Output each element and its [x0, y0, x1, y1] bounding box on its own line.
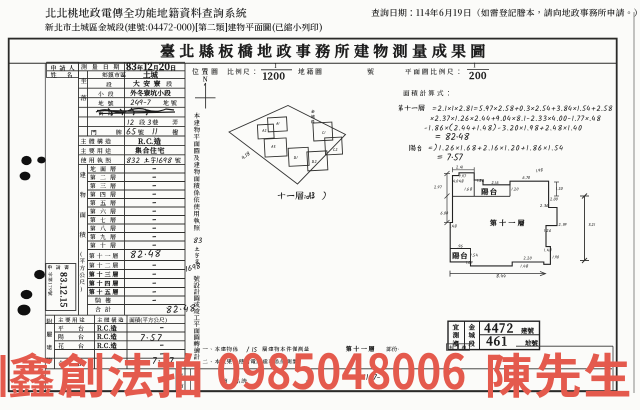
svg-text:1.50: 1.50 [555, 186, 563, 193]
svg-text:陽台: 陽台 [481, 187, 498, 198]
svg-text:1200: 1200 [263, 69, 287, 83]
svg-text:第十二層: 第十二層 [88, 260, 120, 269]
svg-text:坐: 坐 [81, 76, 88, 85]
svg-text:1.48: 1.48 [520, 264, 529, 271]
svg-text:82·48: 82·48 [165, 301, 197, 319]
svg-text:N: N [203, 75, 209, 84]
svg-text:6.70: 6.70 [523, 175, 531, 182]
svg-text:建號: 建號 [520, 326, 535, 335]
svg-text:200: 200 [469, 68, 488, 82]
svg-text:第十一層: 第十一層 [397, 104, 425, 113]
svg-text:北北桃地政電傳全功能地籍資料查詢系統: 北北桃地政電傳全功能地籍資料查詢系統 [45, 5, 247, 21]
svg-text:2.16: 2.16 [491, 180, 500, 187]
svg-text:鑫創法拍: 鑫創法拍 [8, 338, 206, 406]
svg-text:1.90: 1.90 [552, 255, 560, 262]
svg-text:號: 號 [367, 67, 375, 77]
svg-text:陽台: 陽台 [409, 145, 423, 152]
svg-text:路: 路 [310, 119, 315, 125]
svg-text:土字: 土字 [143, 157, 157, 164]
svg-text:牌: 牌 [115, 127, 122, 136]
svg-text:1698: 1698 [156, 155, 172, 168]
svg-text:合計: 合計 [95, 305, 115, 314]
svg-text:A1: A1 [276, 122, 280, 128]
svg-text:建: 建 [80, 170, 87, 179]
svg-text:面: 面 [80, 210, 86, 219]
svg-text:R.C.造: R.C.造 [97, 323, 117, 332]
svg-text:B2: B2 [312, 160, 318, 166]
svg-text:積: 積 [80, 230, 87, 239]
svg-text:1.26: 1.26 [543, 228, 552, 235]
svg-text:3: 3 [147, 117, 152, 130]
svg-text:1.26: 1.26 [476, 178, 485, 185]
svg-text:小段: 小段 [97, 89, 118, 98]
svg-text:.48: .48 [451, 224, 457, 231]
svg-text:土: 土 [194, 246, 200, 252]
svg-text:第十四層: 第十四層 [88, 278, 120, 287]
svg-text:物: 物 [80, 190, 87, 199]
svg-text:3.21: 3.21 [588, 222, 595, 229]
svg-text:段: 段 [139, 118, 146, 127]
svg-text:臺北縣板橋地政事務所建物測量成果圖: 臺北縣板橋地政事務所建物測量成果圖 [160, 41, 490, 62]
svg-text:): ) [80, 285, 82, 293]
svg-text:2.97: 2.97 [433, 185, 443, 192]
svg-text:鄉鎮市區: 鄉鎮市區 [102, 70, 126, 79]
svg-text:6.00: 6.00 [441, 211, 449, 218]
svg-text:第十一層: 第十一層 [88, 251, 120, 260]
svg-text:字: 字 [194, 252, 200, 259]
svg-text:面積(平方公尺): 面積(平方公尺) [129, 316, 167, 324]
svg-text:主要用途: 主要用途 [80, 146, 114, 155]
svg-text:2.39: 2.39 [558, 222, 567, 229]
svg-text:1.20: 1.20 [511, 187, 519, 194]
svg-text:使用執照: 使用執照 [81, 155, 114, 164]
svg-text:A3: A3 [271, 145, 276, 151]
svg-text:C1: C1 [322, 131, 326, 137]
svg-text:地籍圖: 地籍圖 [298, 67, 324, 77]
svg-text:82·48: 82·48 [129, 246, 162, 265]
svg-text:照: 照 [194, 223, 201, 232]
svg-text:樓: 樓 [172, 127, 179, 136]
svg-text:83.12.15: 83.12.15 [58, 271, 70, 308]
svg-text:地號: 地號 [98, 99, 118, 108]
svg-text:1.48: 1.48 [543, 248, 552, 255]
svg-text:號: 號 [137, 127, 144, 136]
svg-text:大安寮: 大安寮 [133, 78, 164, 88]
svg-text:8.44: 8.44 [495, 273, 506, 281]
svg-text:落: 落 [81, 93, 88, 102]
svg-text:陳先生: 陳先生 [485, 338, 634, 406]
svg-text:平面圖比例尺：: 平面圖比例尺： [405, 66, 464, 76]
svg-text:號: 號 [174, 155, 181, 164]
svg-text:第十一層: 第十一層 [489, 219, 527, 229]
svg-text:1.54: 1.54 [470, 253, 478, 260]
svg-text:騎樓: 騎樓 [94, 296, 115, 305]
svg-text:附: 附 [47, 317, 53, 326]
svg-text:新北市土城區金城段(建號:04472-000)[第二類]建物: 新北市土城區金城段(建號:04472-000)[第二類]建物平面圖(已縮小列印) [45, 21, 322, 34]
svg-text:832: 832 [126, 155, 140, 168]
svg-text:地號: 地號 [163, 98, 179, 107]
svg-text:1.09: 1.09 [465, 260, 473, 267]
svg-text:字第179號: 字第179號 [47, 271, 54, 296]
svg-text:65: 65 [126, 125, 136, 140]
svg-text:C2: C2 [333, 148, 338, 154]
svg-text:.96: .96 [458, 244, 464, 251]
svg-text:2.20: 2.20 [523, 256, 532, 263]
svg-text:): ) [321, 189, 327, 204]
svg-text:門: 門 [91, 127, 97, 136]
svg-text:1.98: 1.98 [534, 167, 544, 175]
svg-text:0985048006: 0985048006 [216, 333, 466, 403]
svg-text:段: 段 [106, 80, 112, 89]
svg-text:2.41: 2.41 [455, 165, 463, 172]
svg-text:弄: 弄 [172, 118, 178, 127]
svg-text:A2: A2 [262, 129, 267, 135]
svg-text:2.00: 2.00 [549, 197, 558, 204]
svg-text:主體構造: 主體構造 [80, 137, 114, 146]
svg-text:申請書: 申請書 [48, 264, 73, 271]
svg-text:十一層:A3: 十一層:A3 [277, 191, 315, 201]
svg-text:平台: 平台 [57, 323, 98, 332]
svg-text:查詢日期：114年6月19日（如需登記謄本，請向地政事務所申: 查詢日期：114年6月19日（如需登記謄本，請向地政事務所申請。） [371, 6, 640, 19]
svg-text:第十三層: 第十三層 [88, 269, 120, 278]
svg-text:面積計算式：: 面積計算式： [403, 88, 453, 98]
svg-text:外冬寮坑小段: 外冬寮坑小段 [129, 88, 172, 98]
svg-text:第十層: 第十層 [89, 241, 120, 250]
svg-text:4.048: 4.048 [453, 178, 464, 185]
svg-text:比例尺：: 比例尺： [227, 66, 259, 76]
svg-text:1.68: 1.68 [464, 187, 473, 194]
svg-text:B1: B1 [294, 156, 298, 162]
svg-text:2.36: 2.36 [539, 203, 549, 210]
